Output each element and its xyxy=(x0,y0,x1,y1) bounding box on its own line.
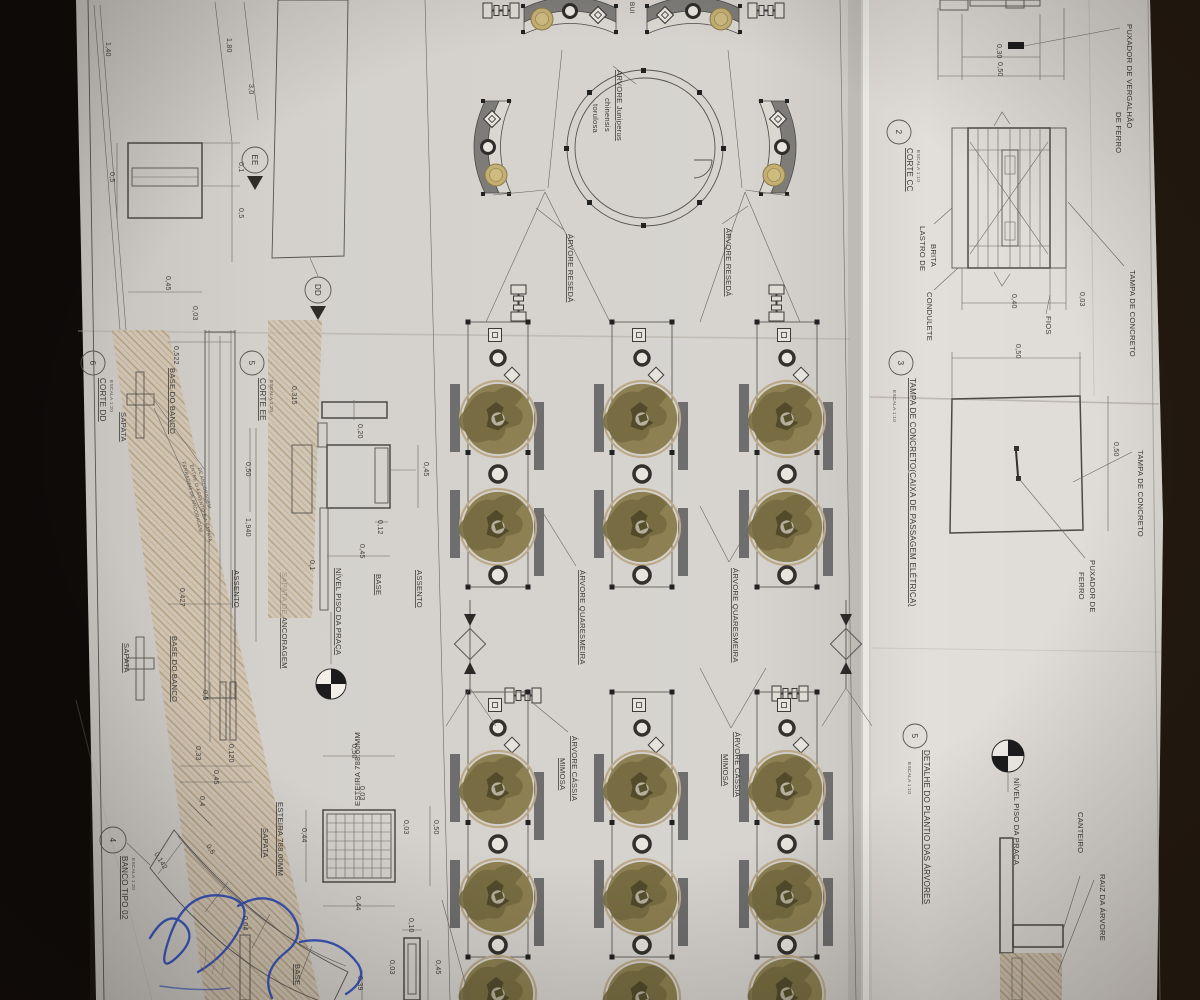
label-raiz-arvore: RAIZ DA ÁRVORE xyxy=(1098,874,1107,941)
callout-tampa-title: TAMPA DE CONCRETO(CAIXA DE PASSAGEM ELÉT… xyxy=(908,378,917,607)
dim-1-80: 1,80 xyxy=(225,38,232,53)
marker-ee: EE xyxy=(250,154,259,165)
dim-bench-05l: 0,5 xyxy=(108,172,115,182)
label-reseda-2: ÁRVORE RESEDÁ xyxy=(724,228,733,297)
callout-plantio-scale: ESCALA 1:10 xyxy=(906,762,912,794)
label-reseda-1: ÁRVORE RESEDÁ xyxy=(566,234,575,303)
callout-corte-cc-scale: ESCALA 1:10 xyxy=(915,150,921,182)
label-canteiro: CANTEIRO xyxy=(1076,812,1085,853)
label-puxador-ferro-1: PUXADOR DE xyxy=(1088,560,1097,613)
dim-033: 0,33 xyxy=(194,746,201,761)
dim-0427: 0,427 xyxy=(178,588,185,607)
callout-banco-scale: ESCALA 1:20 xyxy=(130,858,136,890)
label-quaresmeira-1: ÁRVORE QUARESMEIRA xyxy=(578,570,587,665)
label-sapata-3: SAPATA xyxy=(261,828,270,858)
label-fios: FIOS xyxy=(1044,316,1053,335)
dim-04: 0,4 xyxy=(198,796,205,806)
fold-shadow xyxy=(848,0,861,1000)
dim-020: 0,20 xyxy=(356,424,363,439)
dim-banco-05top: 0,5 xyxy=(201,690,208,700)
label-juniperus-2: chinensis xyxy=(603,98,612,132)
callout-corte-dd-scale: ESCALA 1:20 xyxy=(108,380,114,412)
dim-banco-045: 0,45 xyxy=(212,770,219,785)
dim-est-050t: 0,50 xyxy=(350,744,357,759)
dim-p003: 0,03 xyxy=(388,960,395,975)
dim-030: 0,30 xyxy=(995,44,1002,59)
dim-1940: 1,940 xyxy=(244,518,251,537)
callout-corte-cc-title: CORTE CC xyxy=(905,148,914,192)
dim-1-40: 1,40 xyxy=(104,42,111,57)
label-tampa-concreto-1: TAMPA DE CONCRETO xyxy=(1128,270,1137,357)
callout-tampa-num: 3 xyxy=(896,361,905,366)
label-base-ee: BASE xyxy=(374,574,383,595)
dim-tampa-050t: 0,50 xyxy=(1014,344,1021,359)
dim-cc-050: 0,50 xyxy=(996,62,1003,77)
dim-bench-045: 0,45 xyxy=(164,276,171,291)
table-left-shadow xyxy=(0,0,90,1000)
label-assento-ee: ASSENTO xyxy=(415,570,424,608)
dim-0522: 0,522 xyxy=(172,346,179,365)
label-base-do-banco-2: BASE DO BANCO xyxy=(170,636,179,702)
label-puxador-ferro-2: FERRO xyxy=(1077,572,1086,600)
dim-cc-003: 0,03 xyxy=(1078,292,1085,307)
dim-est-044l: 0,44 xyxy=(300,828,307,843)
dim-est-003t: 0,03 xyxy=(358,786,365,801)
callout-tampa-scale: ESCALA 1:10 xyxy=(891,390,897,422)
dim-3-0: 3,0 xyxy=(247,84,254,94)
dim-012: 0,12 xyxy=(376,520,383,535)
callout-corte-cc-num: 2 xyxy=(894,130,903,135)
dim-p045: 0,45 xyxy=(434,960,441,975)
dim-010: 0,10 xyxy=(407,918,414,933)
label-cassia-1a: ÁRVORE CÁSSIA xyxy=(570,736,579,802)
dim-0315: 0,315 xyxy=(290,386,297,405)
label-quaresmeira-2: ÁRVORE QUARESMEIRA xyxy=(731,568,740,663)
label-tampa-concreto-2: TAMPA DE CONCRETO xyxy=(1136,450,1145,537)
dim-040: 0,40 xyxy=(1010,294,1017,309)
dim-0120: 0,120 xyxy=(227,744,234,763)
dim-est-044b: 0,44 xyxy=(354,896,361,911)
label-puxador-vergalhao-2: DE FERRO xyxy=(1114,112,1123,153)
callout-banco-title: BANCO TIPO 02 xyxy=(120,856,129,920)
dim-est-050r: 0,50 xyxy=(432,820,439,835)
dim-dd-050: 0,50 xyxy=(244,462,251,477)
label-base-do-banco-1: BASE DO BANCO xyxy=(168,368,177,434)
label-lastro-2: BRITA xyxy=(929,244,938,268)
dim-ee-01: 0,1 xyxy=(308,560,315,570)
label-cassia-2b: MIMOSA xyxy=(721,754,730,787)
marker-dd: DD xyxy=(313,284,322,296)
label-condulete: CONDULETE xyxy=(925,292,934,341)
callout-corte-ee-num: 5 xyxy=(247,361,256,366)
dim-bench-05r: 0,5 xyxy=(237,208,244,218)
callout-corte-ee-scale: ESCALA 1:20 xyxy=(268,380,274,412)
label-assento-dd: ASSENTO xyxy=(232,570,241,608)
label-base-plate: BASE xyxy=(293,964,302,985)
dim-ee-045b: 0,45 xyxy=(358,544,365,559)
label-lastro-1: LASTRO DE xyxy=(918,226,927,271)
label-esteira-left: ESTEIRA 788.00MM xyxy=(276,802,285,876)
callout-corte-dd-num: 6 xyxy=(88,361,97,366)
callout-banco-num: 4 xyxy=(108,838,117,843)
callout-corte-ee-title: CORTE EE xyxy=(258,378,267,421)
label-sapata-1: SAPATA xyxy=(119,412,128,442)
label-puxador-vergalhao-1: PUXADOR DE VERGALHÃO xyxy=(1125,24,1134,129)
callout-plantio-num: 5 xyxy=(910,734,919,739)
label-juniperus-3: torulosa xyxy=(591,104,600,134)
dim-tampa-050r: 0,50 xyxy=(1112,442,1119,457)
dim-bench-003: 0,03 xyxy=(191,306,198,321)
blueprint-photo: 1,40 1,80 3,0 0,5 0,1 0,5 0,45 0,03 EE D… xyxy=(0,0,1200,1000)
label-cassia-1b: MIMOSA xyxy=(558,758,567,791)
label-edge-fragment: BUI xyxy=(628,2,635,14)
label-cassia-2a: ÁRVORE CÁSSIA xyxy=(733,732,742,798)
label-nivel-piso-ee: NÍVEL PISO DA PRAÇA xyxy=(334,568,343,656)
callout-plantio-title: DETALHE DO PLANTIO DAS ÁRVORES xyxy=(922,750,931,904)
photo-of-blueprint: 1,40 1,80 3,0 0,5 0,1 0,5 0,45 0,03 EE D… xyxy=(0,0,1200,1000)
callout-corte-dd-title: CORTE DD xyxy=(98,378,107,422)
dim-est-003r: 0,03 xyxy=(402,820,409,835)
label-juniperus-1: ÁRVORE Juniperus xyxy=(615,70,624,141)
label-sapata-2: SAPATA xyxy=(122,643,131,673)
fold-highlight xyxy=(863,0,869,1000)
dim-ee-045r: 0,45 xyxy=(422,462,429,477)
